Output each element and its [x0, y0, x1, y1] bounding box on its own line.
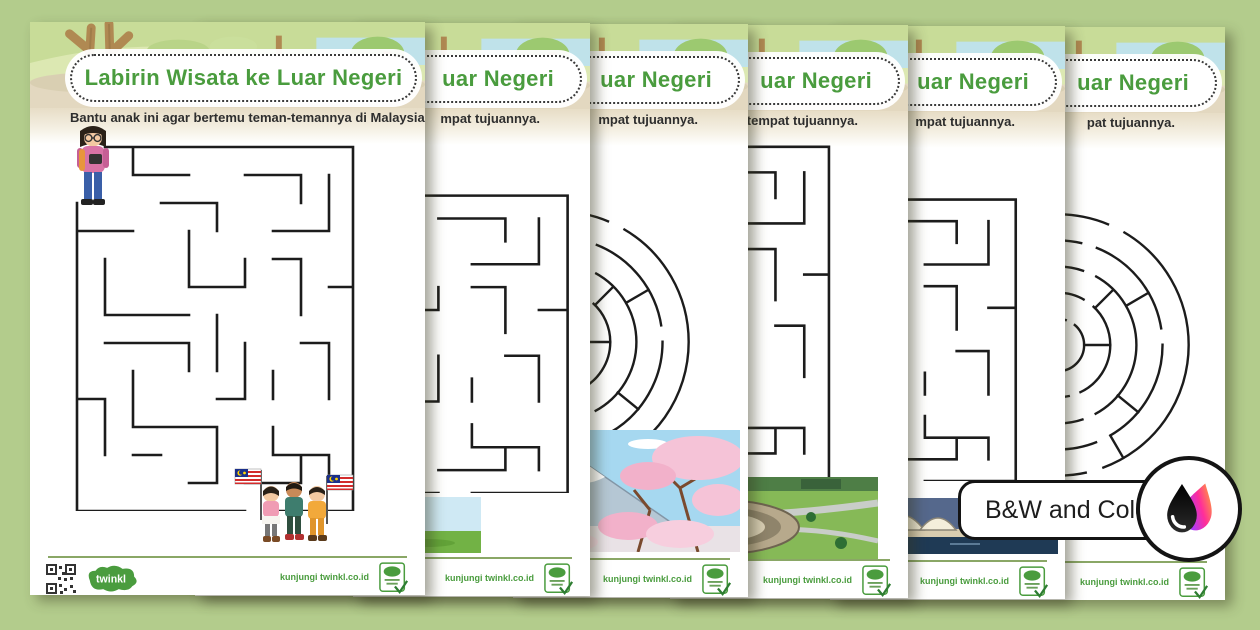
- bw-and-color-label: B&W and Color: [961, 496, 1157, 525]
- visit-link-text: kunjungi twinkl.co.id: [603, 574, 692, 584]
- worksheet-preview-stage: Labirin Wisata ke Luar Negeri Bantu anak…: [0, 0, 1260, 630]
- ink-drops-badge-circle: [1136, 456, 1242, 562]
- page-instructions: mpat tujuannya.: [915, 114, 1015, 129]
- page-instructions: Bantu anak ini agar bertemu teman-temann…: [70, 110, 425, 125]
- twinkl-quality-stamp-icon: [544, 562, 574, 596]
- visit-link-text: kunjungi twinkl.co.id: [763, 575, 852, 585]
- page-instructions: mpat tujuannya.: [440, 111, 540, 126]
- visit-link-text: kunjungi twinkl.co.id: [920, 576, 1009, 586]
- visit-link-text: kunjungi twinkl.co.id: [445, 573, 534, 583]
- page-title: Labirin Wisata ke Luar Negeri: [85, 65, 403, 91]
- twinkl-quality-stamp-icon: [862, 564, 892, 598]
- page-title: uar Negeri: [442, 66, 554, 92]
- page-title: uar Negeri: [917, 69, 1029, 95]
- page-instructions: mpat tujuannya.: [598, 112, 698, 127]
- page-instructions: pat tujuannya.: [1087, 115, 1175, 130]
- page-title: uar Negeri: [760, 68, 872, 94]
- twinkl-quality-stamp-icon: [1019, 565, 1049, 599]
- page-title: uar Negeri: [600, 67, 712, 93]
- twinkl-quality-stamp-icon: [1179, 566, 1209, 600]
- twinkl-quality-stamp-icon: [702, 563, 732, 597]
- kids-with-malaysian-flags-illustration: [228, 460, 360, 556]
- worksheet-page-1[interactable]: Labirin Wisata ke Luar Negeri Bantu anak…: [30, 22, 425, 595]
- traveler-girl-illustration: [68, 122, 118, 212]
- visit-link-text: kunjungi twinkl.co.id: [280, 572, 369, 582]
- title-pill: Labirin Wisata ke Luar Negeri: [70, 54, 417, 102]
- svg-text:twinkl: twinkl: [96, 573, 126, 585]
- qr-code: [46, 564, 76, 594]
- ink-drops-icon: [1150, 470, 1228, 548]
- page-title: uar Negeri: [1077, 70, 1189, 96]
- visit-link-text: kunjungi twinkl.co.id: [1080, 577, 1169, 587]
- twinkl-logo: twinkl: [82, 565, 140, 592]
- footer-divider: [48, 556, 407, 558]
- twinkl-quality-stamp-icon: [379, 561, 409, 595]
